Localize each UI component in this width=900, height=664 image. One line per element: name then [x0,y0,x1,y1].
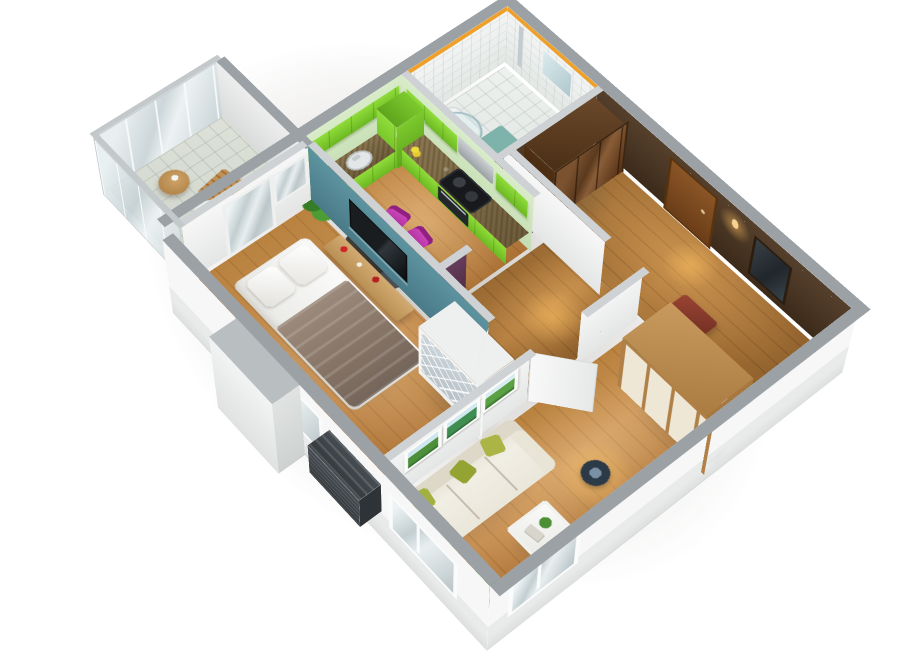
render-canvas [0,0,900,664]
shower-column [517,25,523,68]
window-mullion [417,522,420,555]
scene-3d [0,0,900,664]
